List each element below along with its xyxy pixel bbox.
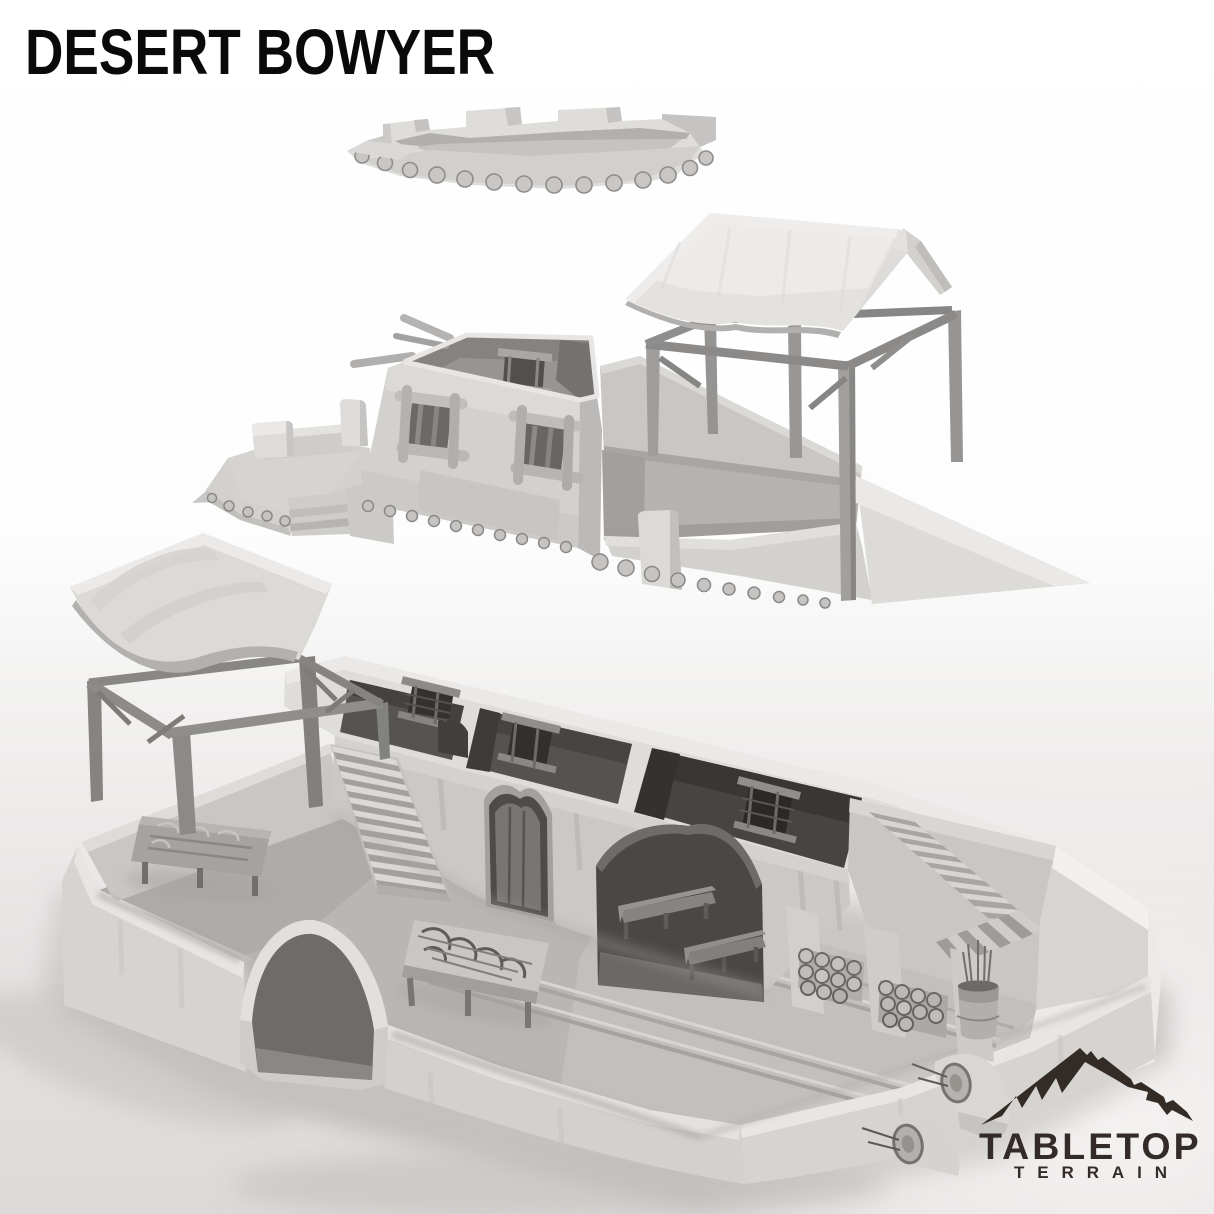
svg-text:DESERT BOWYER: DESERT BOWYER xyxy=(25,16,495,88)
svg-text:TABLETOP: TABLETOP xyxy=(979,1125,1202,1167)
